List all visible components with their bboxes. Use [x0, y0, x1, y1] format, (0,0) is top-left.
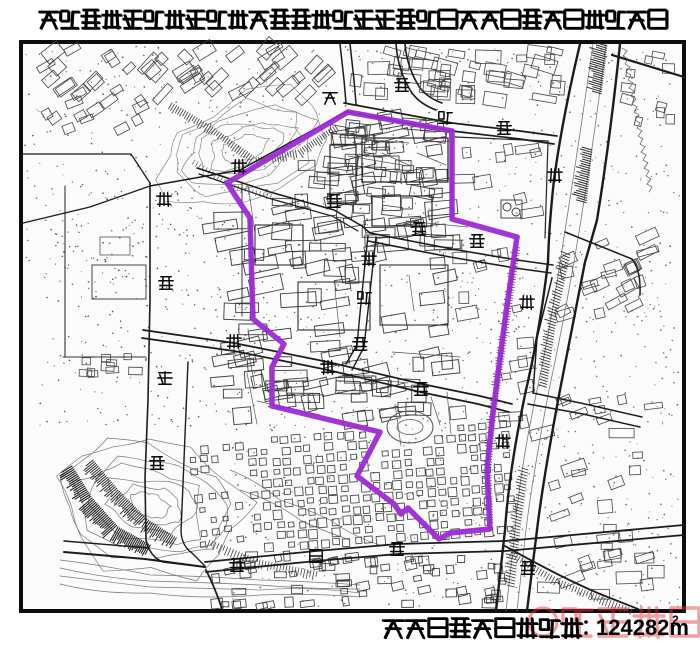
- svg-text:2: 2: [672, 613, 679, 627]
